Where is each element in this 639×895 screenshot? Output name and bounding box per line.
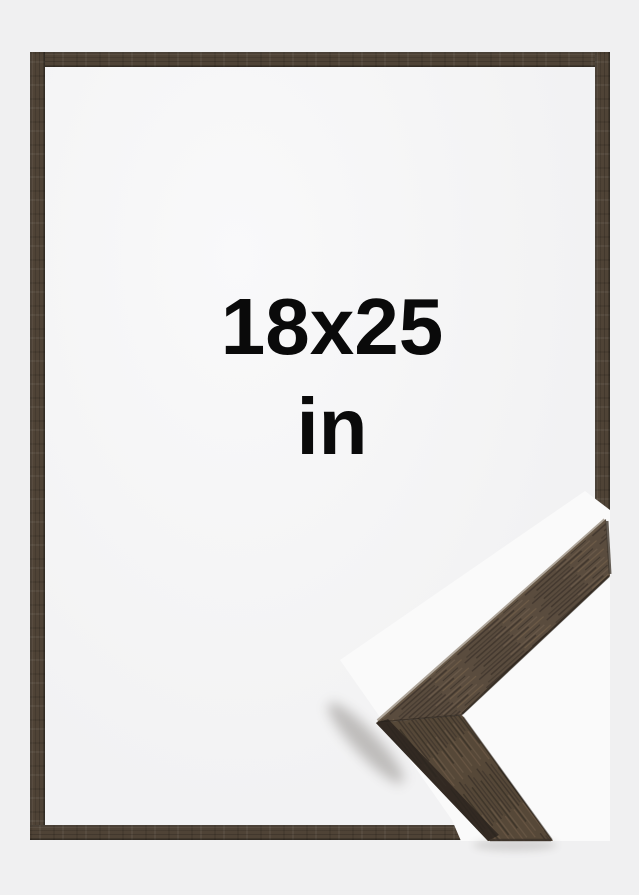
- frame-border-top: [30, 52, 610, 67]
- size-label-dimensions: 18x25: [57, 277, 607, 377]
- size-label-unit: in: [57, 377, 607, 477]
- product-image[interactable]: 18x25 in: [0, 0, 639, 895]
- size-label: 18x25 in: [45, 277, 607, 477]
- frame-border-left: [30, 52, 45, 840]
- corner-detail-shadow-tip: [473, 839, 557, 851]
- frame-border-bottom: [30, 825, 610, 840]
